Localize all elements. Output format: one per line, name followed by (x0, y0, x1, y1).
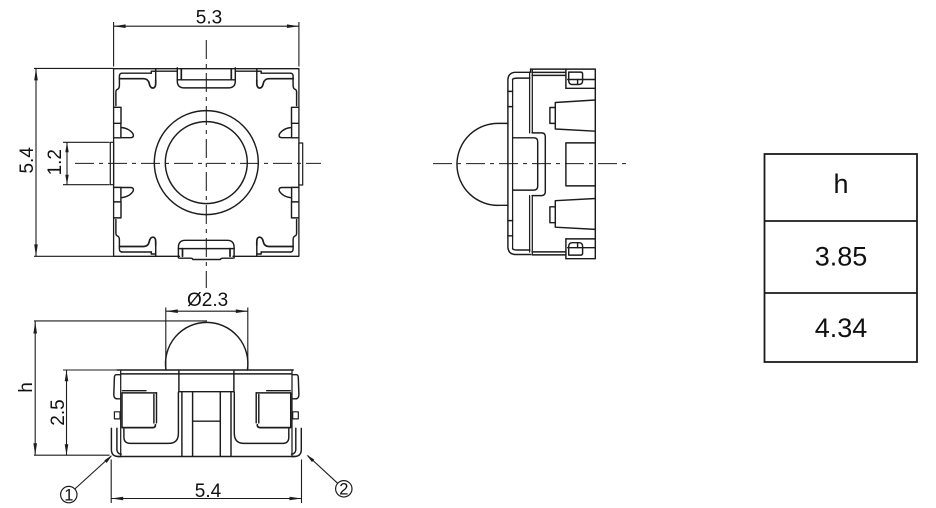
svg-text:h: h (833, 169, 848, 199)
svg-text:1.2: 1.2 (45, 149, 66, 175)
svg-text:5.4: 5.4 (17, 147, 38, 174)
svg-text:2.5: 2.5 (48, 399, 69, 425)
svg-text:4.34: 4.34 (815, 313, 868, 343)
svg-text:Ø2.3: Ø2.3 (187, 290, 228, 311)
svg-text:5.4: 5.4 (195, 481, 222, 502)
svg-text:5.3: 5.3 (196, 8, 222, 29)
svg-text:h: h (16, 382, 37, 393)
svg-text:1: 1 (64, 487, 73, 505)
svg-text:2: 2 (339, 481, 348, 499)
svg-text:3.85: 3.85 (815, 242, 868, 272)
